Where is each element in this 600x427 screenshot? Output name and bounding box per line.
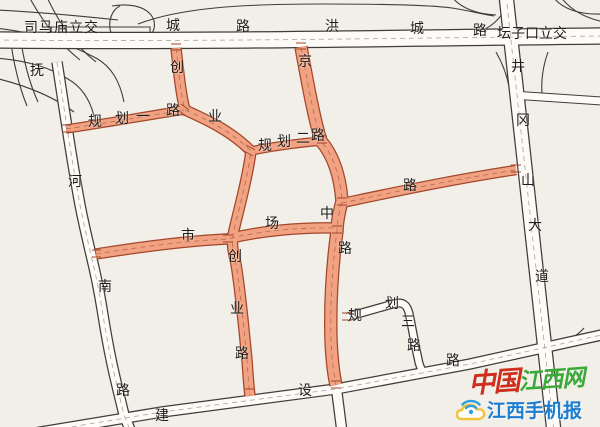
site-logo: 中国江西网 (467, 354, 585, 401)
app-logo-text: 江西手机报 (487, 396, 582, 423)
wifi-cloud-icon (455, 395, 487, 423)
map-canvas: 司马庙立交城路洪城路坛子口立交创业规划一路京规划二路路井冈山大道抚河南路中路市场… (0, 0, 600, 427)
app-logo: 江西手机报 (455, 395, 582, 423)
highlight-roads-outline (66, 47, 516, 396)
junction-ticks (62, 43, 521, 389)
highlight-roads-fill (66, 47, 516, 396)
site-logo-site: 江西网 (517, 364, 585, 396)
